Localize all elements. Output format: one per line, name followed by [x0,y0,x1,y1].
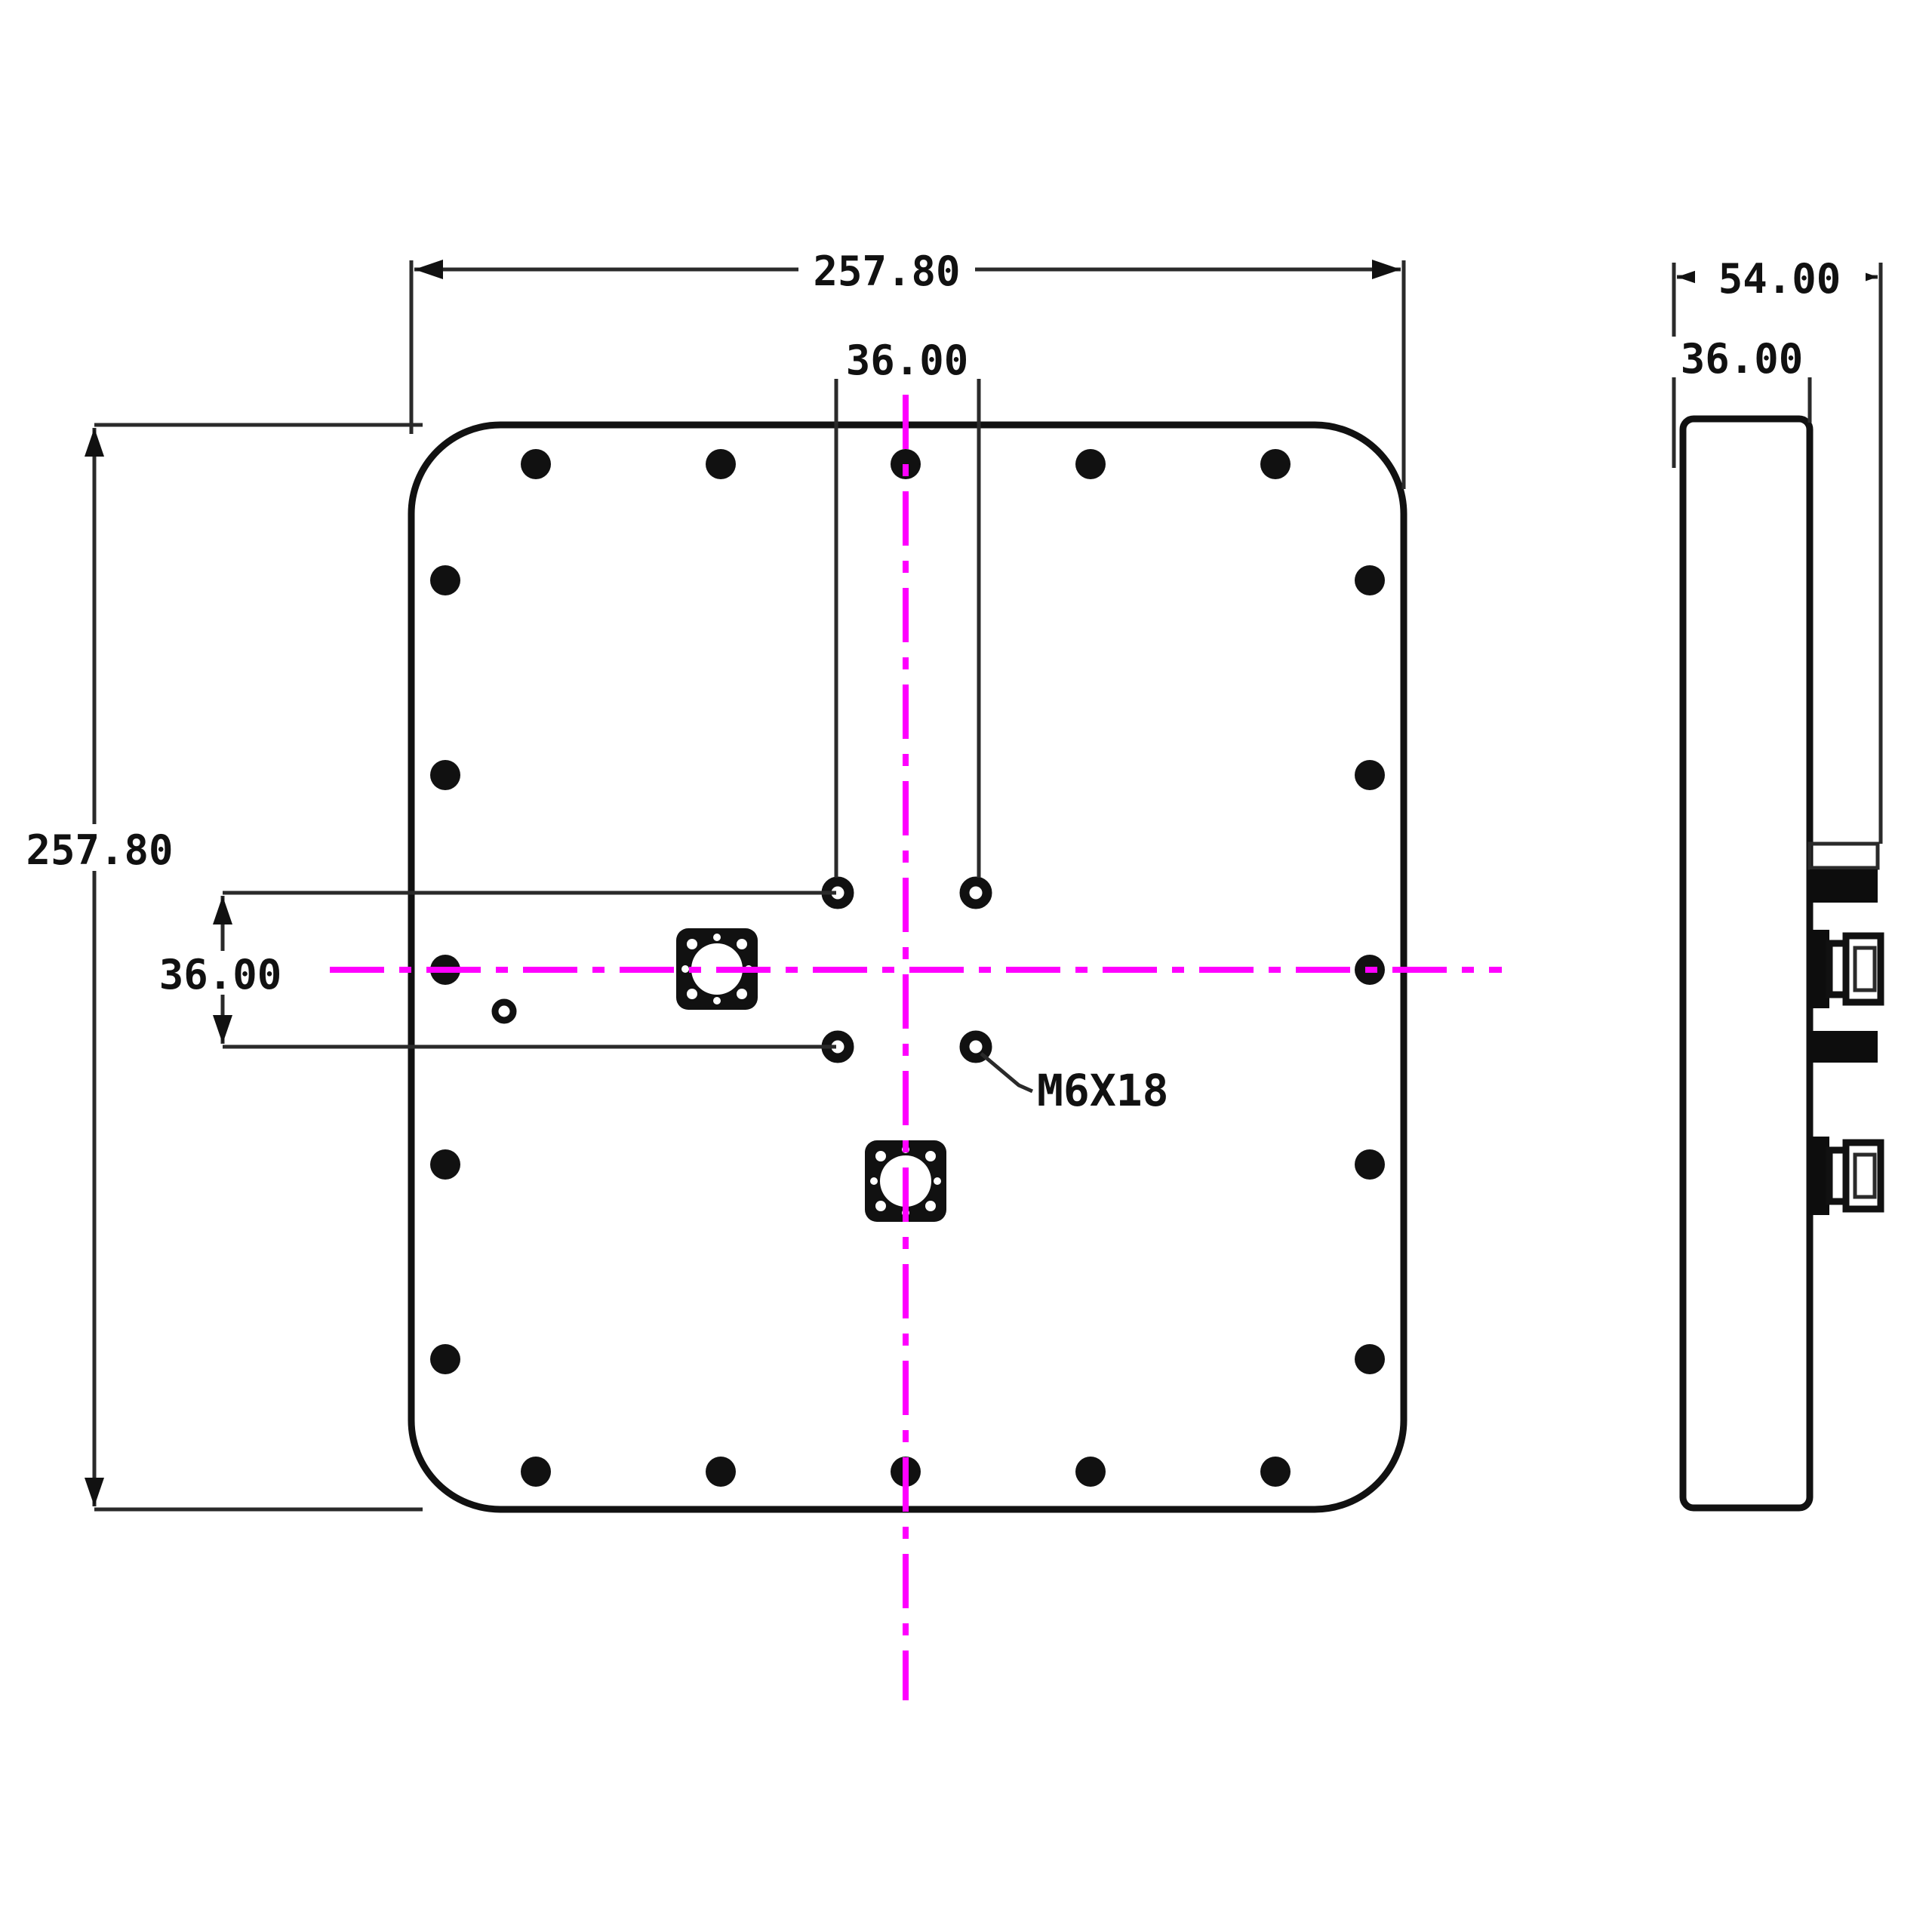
screw-hole [706,1457,736,1487]
dim-depth: 54.00 [1718,255,1841,303]
screw-hole [706,449,736,479]
flange-screw-dot [713,934,721,941]
flange-screw-dot [687,989,697,999]
flange-screw-dot [713,997,721,1004]
dim-top-width: 257.80 [813,248,960,295]
connector-recess [1855,1155,1875,1197]
mounting-hole-m6 [964,881,987,904]
screw-hole [521,1457,551,1487]
stud-washer [1810,844,1878,868]
screw-hole [1260,449,1291,479]
dim-left-height: 257.80 [26,826,173,874]
screw-hole [1260,1457,1291,1487]
leader-line-m6x18 [981,1054,1032,1091]
dim-left-spacing: 36.00 [159,951,282,998]
arrowhead [213,896,232,924]
flange-screw-dot [925,1201,936,1211]
screw-hole [430,760,460,790]
side-body-outline [1683,419,1810,1508]
flange-screw-dot [870,1177,878,1185]
label-m6x18: M6X18 [1037,1065,1169,1116]
arrowhead [85,428,104,457]
screw-hole [430,565,460,595]
dim-body-thickness: 36.00 [1681,335,1804,383]
screw-hole [1075,449,1106,479]
side-view [1683,419,1881,1508]
pilot-hole-group [495,1002,513,1020]
pilot-hole [495,1002,513,1020]
arrowhead [1372,260,1401,279]
stud-m6x18-lower [1810,1031,1878,1063]
arrowhead [213,1015,232,1044]
flange-screw-dot [681,965,689,973]
flange-screw-dot [875,1201,886,1211]
screw-hole [1075,1457,1106,1487]
screw-hole [1355,1149,1385,1180]
flange-screw-dot [934,1177,941,1185]
screw-hole [1355,1344,1385,1374]
flange-screw-dot [737,989,747,999]
screw-hole [1355,565,1385,595]
drawing-page: 257.80 36.00 257.80 36.00 M6X18 [0,0,1932,1932]
arrowhead [85,1478,104,1506]
flange-screw-dot [737,939,747,949]
front-view-dimensions: 257.80 36.00 257.80 36.00 M6X18 [24,248,1404,1509]
flange-screw-dot [925,1151,936,1161]
flange-screw-dot [875,1151,886,1161]
screw-hole [430,1149,460,1180]
dim-top-spacing: 36.00 [846,337,969,384]
drawing-canvas: 257.80 36.00 257.80 36.00 M6X18 [0,0,1932,1932]
screw-hole [521,449,551,479]
screw-hole [1355,760,1385,790]
arrowhead [414,260,443,279]
flange-screw-dot [687,939,697,949]
connector-recess [1855,948,1875,990]
side-view-dimensions: 54.00 36.00 [1665,255,1881,844]
side-connector-lower [1810,1137,1881,1215]
screw-hole [430,1344,460,1374]
side-connector-upper [1810,930,1881,1008]
stud-m6x18-upper [1810,869,1878,903]
